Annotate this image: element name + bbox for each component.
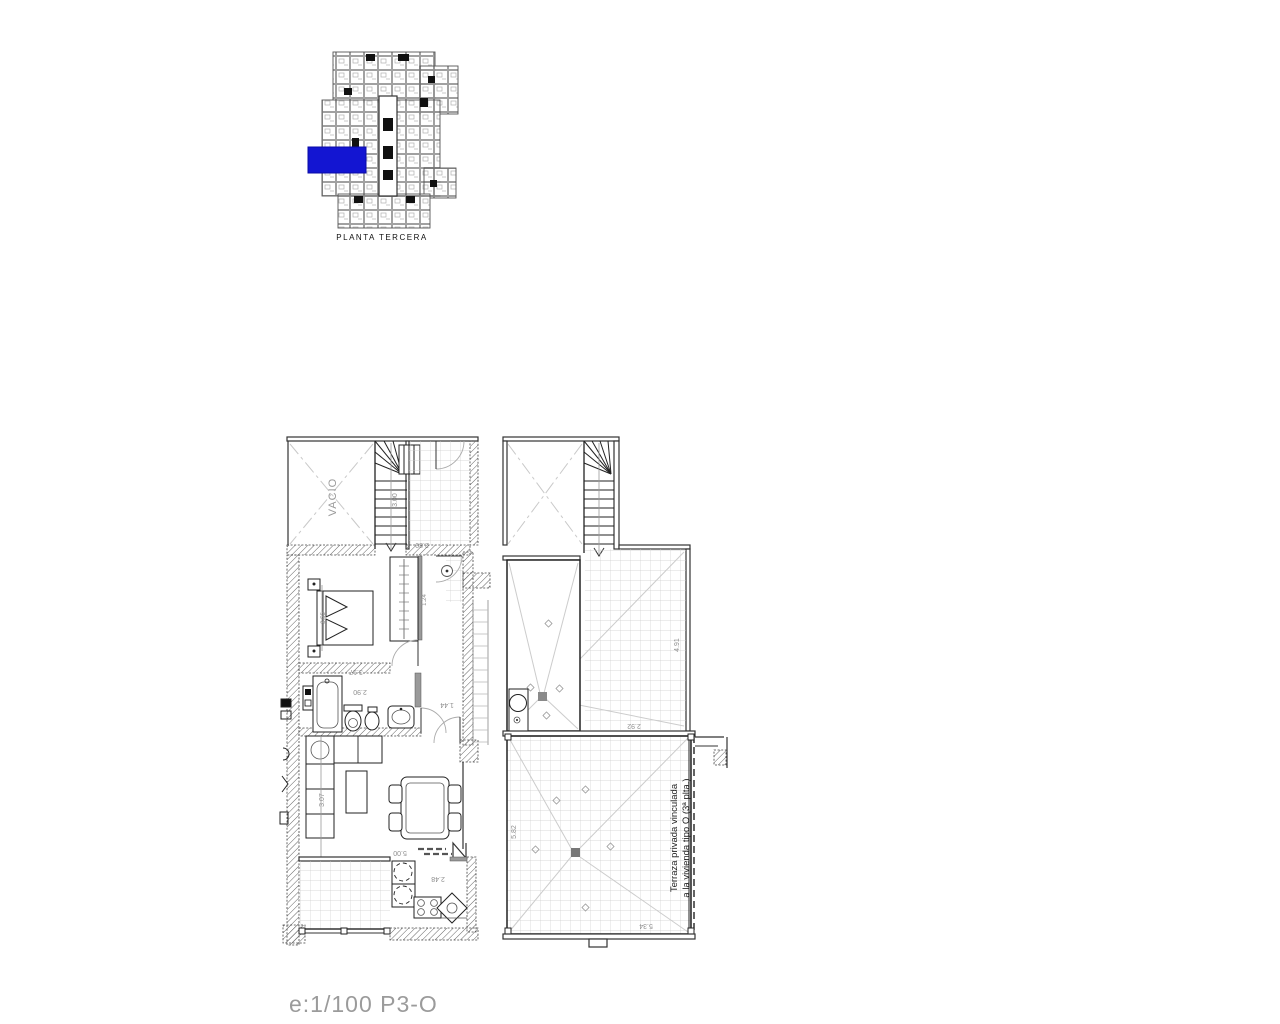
dim-living-width: 5.00 [393, 849, 407, 856]
entry-door [436, 556, 463, 602]
fridge [392, 861, 415, 907]
bottom-tab [589, 939, 607, 947]
lower-terrace [299, 861, 390, 934]
kitchen: 2.48 [390, 857, 478, 940]
key-plan-highlight-unit [308, 147, 366, 173]
wardrobe: 1.24 [390, 557, 428, 641]
terrace-plan: 4.91 2.92 [503, 437, 727, 947]
scale-label: e:1/100 P3-O [289, 991, 438, 1017]
bathroom: 2.90 1.44 [299, 673, 454, 736]
entry-landing: 2.80 [409, 441, 470, 548]
drain [571, 848, 580, 857]
dim-upper-terrace-depth: 4.91 [674, 638, 681, 652]
chair [448, 785, 461, 803]
window-symbol [453, 843, 466, 858]
bedroom: 3.55 1.24 3.17 [299, 556, 428, 675]
terrace-window-sill [299, 857, 390, 861]
dining-table [389, 777, 461, 839]
coffee-table [346, 771, 367, 813]
dim-hall-width: 1.44 [440, 701, 454, 708]
terrace-note-line1: Terraza privada vinculada [669, 783, 680, 892]
apartment-plan: VACIO [280, 437, 490, 945]
chair [448, 813, 461, 831]
bidet [365, 707, 379, 730]
key-plan-label: PLANTA TERCERA [336, 233, 427, 242]
void-label: VACIO [327, 478, 339, 516]
dim-living-depth: 3.07 [319, 793, 326, 807]
chair [389, 813, 402, 831]
terrace-note: Terraza privada vinculada a la vivienda … [669, 778, 692, 897]
chair [389, 785, 402, 803]
west-wall [287, 555, 299, 945]
dim-upper-terrace-width: 2.92 [627, 722, 641, 729]
sliding-door [418, 849, 452, 854]
adjacent-structure [695, 737, 727, 768]
bathtub [313, 676, 342, 732]
east-gallery [473, 600, 488, 745]
dim-bathroom-width: 2.90 [353, 688, 367, 695]
dim-main-terrace-width: 5.34 [639, 922, 653, 929]
dim-stair-flight: 3.00 [392, 493, 399, 507]
living-room: 3.07 5.00 [299, 736, 478, 861]
hall-door [434, 717, 460, 743]
main-terrace: 5.82 5.34 Terraza privada vinculada a la… [503, 731, 695, 947]
floor-plan-sheet: PLANTA TERCERA VACIO [0, 0, 1280, 1024]
laundry-shelf [303, 686, 313, 710]
terrace-note-line2: a la vivienda tipo O (3ª plta.) [681, 778, 692, 897]
washbasin [388, 706, 414, 728]
toilet [344, 705, 362, 731]
bedroom-door [392, 640, 418, 666]
dim-bed-depth: 3.55 [321, 612, 327, 624]
dim-kitchen-width: 2.48 [431, 875, 445, 882]
bathroom-door [421, 708, 446, 733]
drawing-canvas: PLANTA TERCERA VACIO [0, 0, 1280, 1024]
void-area: VACIO [290, 444, 373, 544]
drain-room [503, 556, 580, 731]
dim-wardrobe: 1.24 [422, 594, 428, 606]
dim-main-terrace-depth: 5.82 [511, 825, 518, 839]
bed: 3.55 [317, 585, 373, 651]
water-heater [509, 689, 528, 731]
staircase-right [584, 441, 619, 556]
key-plan: PLANTA TERCERA [308, 52, 458, 242]
dim-bedroom-width: 3.17 [349, 668, 363, 675]
sofa [306, 736, 382, 838]
top-wall [287, 437, 478, 441]
drain [538, 692, 547, 701]
